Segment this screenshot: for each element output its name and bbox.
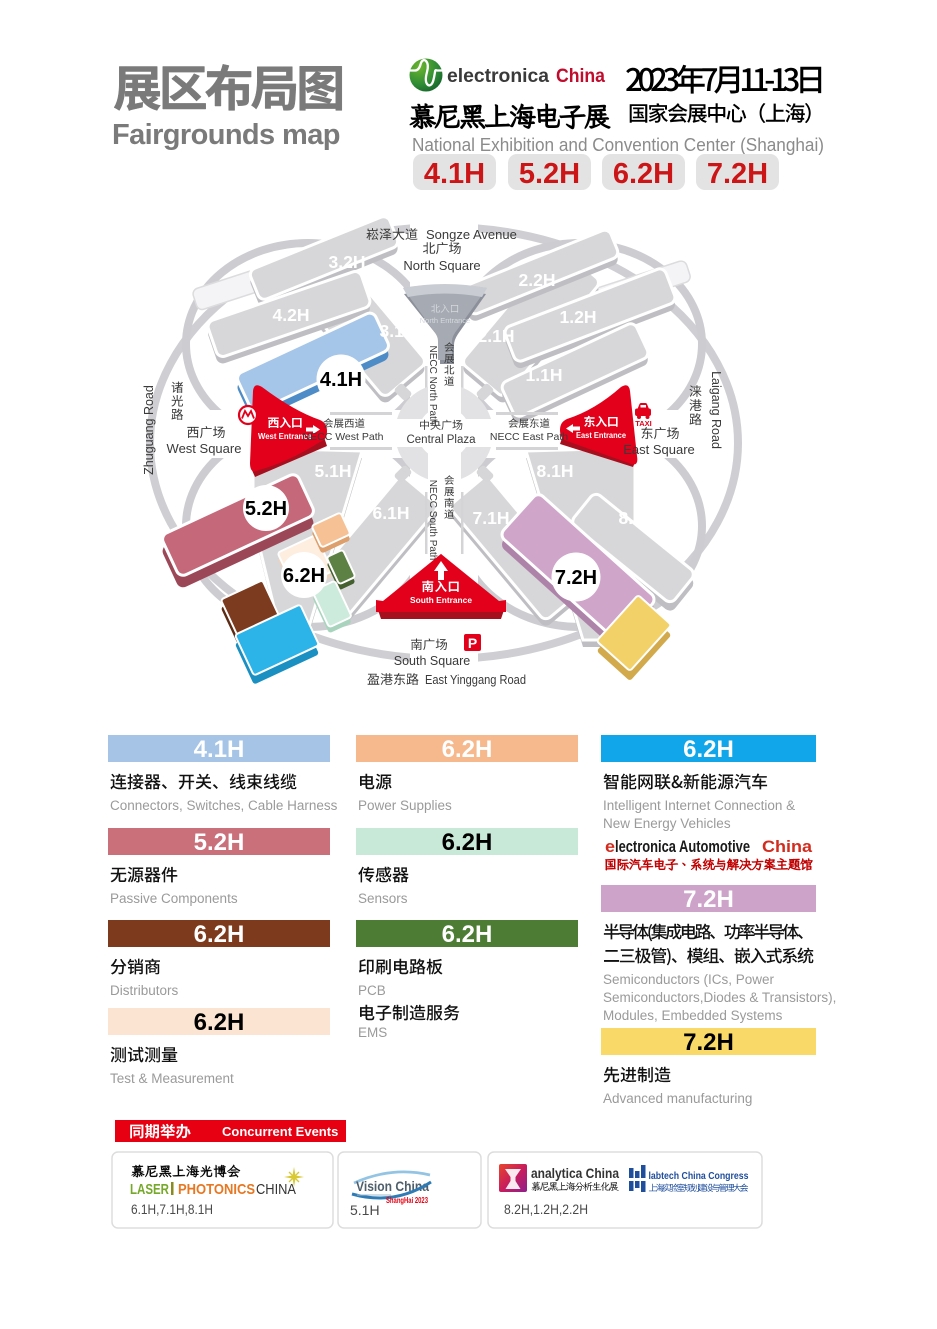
svg-text:5.1H: 5.1H	[315, 461, 352, 481]
svg-text:Zhuguang Road: Zhuguang Road	[142, 385, 156, 475]
svg-text:4.2H: 4.2H	[273, 305, 310, 325]
svg-text:PHOTONICS: PHOTONICS	[178, 1181, 255, 1198]
svg-text:Passive Components: Passive Components	[110, 891, 238, 906]
svg-text:6.2H: 6.2H	[283, 565, 325, 587]
svg-text:Songze Avenue: Songze Avenue	[426, 227, 517, 242]
svg-text:PCB: PCB	[358, 983, 386, 998]
svg-text:Sensors: Sensors	[358, 891, 408, 906]
svg-text:e: e	[605, 838, 615, 856]
svg-text:6.2H: 6.2H	[442, 736, 493, 763]
svg-text:East Yinggang Road: East Yinggang Road	[425, 672, 526, 687]
svg-text:P: P	[468, 635, 477, 651]
svg-text:West Square: West Square	[167, 441, 242, 456]
svg-text:7.1H: 7.1H	[473, 508, 510, 528]
svg-text:South Square: South Square	[394, 654, 470, 668]
svg-text:Concurrent Events: Concurrent Events	[222, 1124, 338, 1139]
svg-text:Semiconductors,Diodes & Transi: Semiconductors,Diodes & Transistors),	[603, 990, 836, 1005]
svg-text:6.2H: 6.2H	[442, 921, 493, 948]
svg-text:2.2H: 2.2H	[519, 270, 556, 290]
svg-text:5.1H: 5.1H	[350, 1202, 380, 1218]
svg-text:Laigang Road: Laigang Road	[709, 371, 723, 449]
svg-text:4.1H: 4.1H	[424, 158, 485, 190]
svg-text:6.1H: 6.1H	[373, 503, 410, 523]
svg-text:labtech China Congress: labtech China Congress	[649, 1170, 749, 1182]
svg-text:6.2H: 6.2H	[442, 829, 493, 856]
svg-text:6.1H,7.1H,8.1H: 6.1H,7.1H,8.1H	[131, 1201, 213, 1217]
svg-text:ShangHai 2023: ShangHai 2023	[386, 1195, 428, 1205]
svg-text:5.2H: 5.2H	[519, 158, 580, 190]
svg-text:1.1H: 1.1H	[526, 365, 563, 385]
svg-text:electronica: electronica	[447, 65, 549, 87]
svg-text:7.2H: 7.2H	[683, 1029, 734, 1056]
svg-text:North Square: North Square	[403, 258, 480, 273]
svg-text:analytica China: analytica China	[531, 1166, 619, 1181]
svg-text:7.2H: 7.2H	[707, 158, 768, 190]
svg-text:3.2H: 3.2H	[329, 252, 366, 272]
svg-text:3.1H: 3.1H	[380, 321, 417, 341]
svg-text:East Square: East Square	[623, 442, 695, 457]
svg-text:Semiconductors (ICs, Power: Semiconductors (ICs, Power	[603, 972, 775, 987]
svg-text:1.2H: 1.2H	[560, 307, 597, 327]
svg-text:7.2H: 7.2H	[683, 886, 734, 913]
svg-text:South Entrance: South Entrance	[410, 595, 472, 605]
svg-text:Test & Measurement: Test & Measurement	[110, 1071, 234, 1086]
svg-text:8.2H,1.2H,2.2H: 8.2H,1.2H,2.2H	[504, 1201, 588, 1217]
svg-text:Modules, Embedded Systems: Modules, Embedded Systems	[603, 1008, 783, 1023]
svg-text:LASER: LASER	[130, 1181, 169, 1198]
svg-text:Vision China: Vision China	[356, 1178, 429, 1194]
svg-text:EMS: EMS	[358, 1025, 387, 1040]
svg-text:7.2H: 7.2H	[555, 567, 597, 589]
svg-text:8.2H: 8.2H	[619, 508, 656, 528]
svg-text:NECC South Path: NECC South Path	[427, 480, 438, 561]
svg-text:TAXI: TAXI	[635, 419, 652, 428]
svg-text:6.2H: 6.2H	[613, 158, 674, 190]
svg-text:6.2H: 6.2H	[194, 921, 245, 948]
svg-text:National Exhibition and Conven: National Exhibition and Convention Cente…	[412, 135, 824, 155]
svg-text:6.2H: 6.2H	[194, 1009, 245, 1036]
svg-text:Intelligent Internet Connectio: Intelligent Internet Connection &	[603, 798, 795, 813]
svg-text:North Entrance: North Entrance	[420, 316, 470, 325]
svg-text:Distributors: Distributors	[110, 983, 179, 998]
svg-text:China: China	[762, 838, 813, 856]
svg-text:2.1H: 2.1H	[478, 326, 515, 346]
svg-text:NECC West Path: NECC West Path	[303, 431, 384, 443]
svg-text:8.1H: 8.1H	[537, 461, 574, 481]
svg-text:NECC North Path: NECC North Path	[427, 346, 438, 425]
svg-text:4.1H: 4.1H	[320, 369, 362, 391]
svg-text:China: China	[556, 65, 605, 87]
svg-text:Advanced manufacturing: Advanced manufacturing	[603, 1091, 752, 1106]
svg-text:CHINA: CHINA	[256, 1181, 296, 1198]
svg-text:Central Plaza: Central Plaza	[406, 434, 476, 446]
svg-text:Fairgrounds map: Fairgrounds map	[112, 119, 340, 151]
svg-text:New Energy Vehicles: New Energy Vehicles	[603, 816, 731, 831]
svg-text:5.2H: 5.2H	[194, 829, 245, 856]
svg-text:6.2H: 6.2H	[683, 736, 734, 763]
svg-text:5.2H: 5.2H	[245, 498, 287, 520]
svg-text:4.1H: 4.1H	[194, 736, 245, 763]
svg-text:Power Supplies: Power Supplies	[358, 798, 452, 813]
svg-text:Connectors, Switches, Cable Ha: Connectors, Switches, Cable Harness	[110, 798, 338, 813]
svg-text:lectronica Automotive: lectronica Automotive	[615, 838, 750, 856]
svg-text:NECC East Path: NECC East Path	[490, 431, 568, 443]
svg-text:East Entrance: East Entrance	[576, 431, 627, 440]
